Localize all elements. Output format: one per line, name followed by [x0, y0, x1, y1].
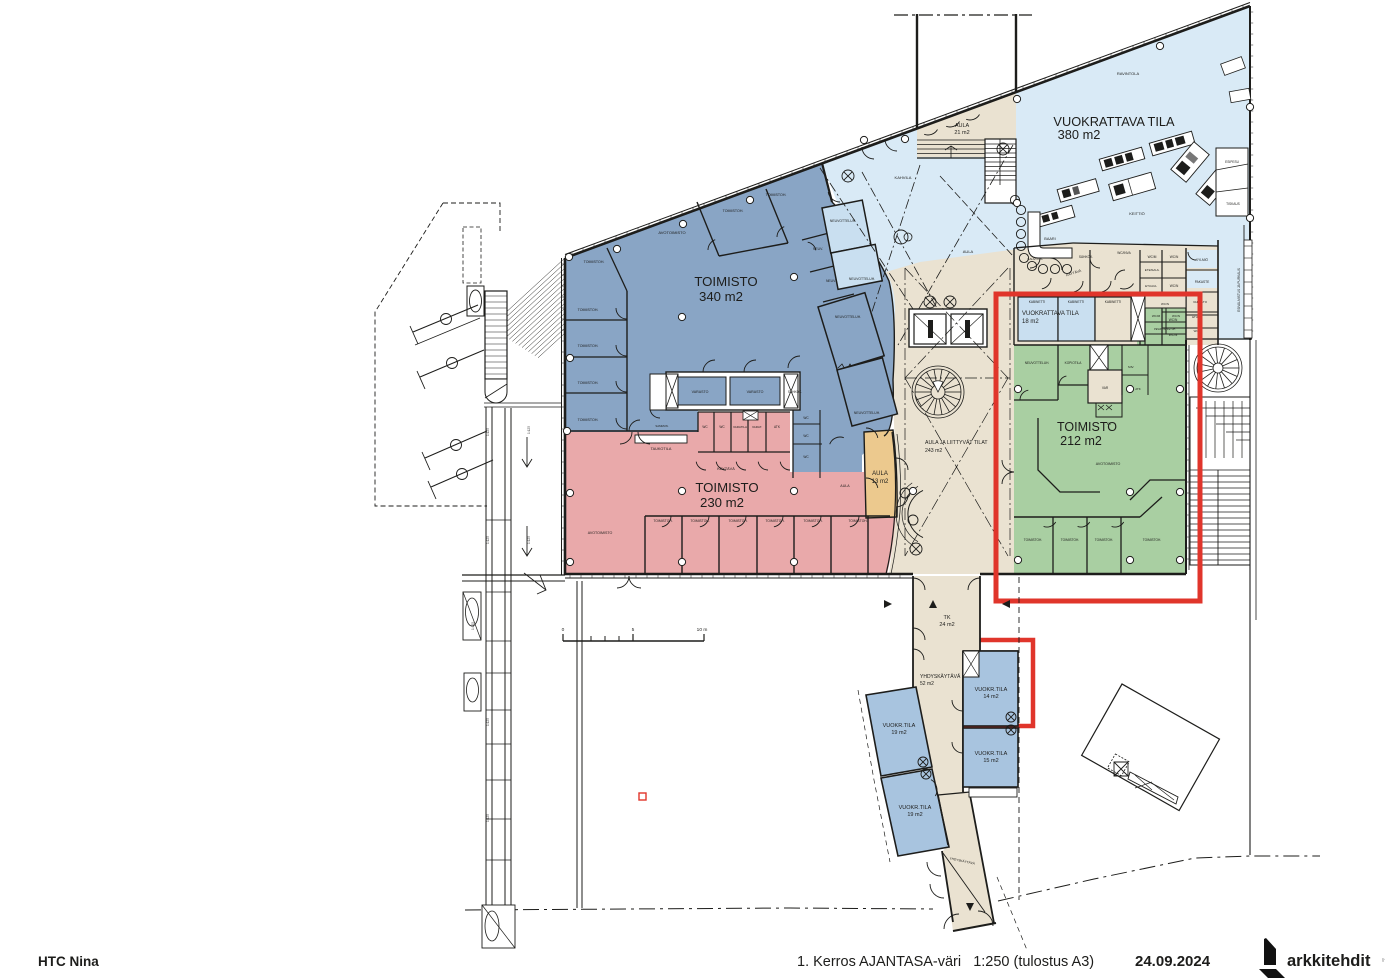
svg-text:SÄHKÖK.: SÄHKÖK. — [788, 390, 802, 394]
svg-text:YHDYSKÄYTÄVÄ: YHDYSKÄYTÄVÄ — [920, 673, 961, 680]
svg-text:WC/N: WC/N — [1170, 284, 1179, 288]
svg-text:18 m2: 18 m2 — [1022, 319, 1039, 325]
svg-text:PAKASTE: PAKASTE — [1195, 280, 1209, 284]
svg-text:TOIMISTOH.: TOIMISTOH. — [578, 418, 599, 422]
svg-text:0: 0 — [562, 627, 565, 633]
svg-text:NEUV.: NEUV. — [826, 279, 836, 283]
svg-text:340 m2: 340 m2 — [699, 289, 743, 304]
svg-text:KYLMIÖ: KYLMIÖ — [1196, 258, 1209, 262]
svg-text:1. Kerros AJANTASA-väri 1:25: 1. Kerros AJANTASA-väri 1:250 (tulostus … — [797, 954, 1094, 970]
svg-text:KABINETTI: KABINETTI — [1029, 300, 1046, 304]
svg-text:VUOKRATTAVA TILA: VUOKRATTAVA TILA — [1022, 311, 1079, 317]
svg-text:13 m2: 13 m2 — [872, 479, 889, 485]
svg-text:NEUVOTTELUH.: NEUVOTTELUH. — [849, 277, 875, 281]
svg-text:NEUVOTTELUH.: NEUVOTTELUH. — [1025, 361, 1050, 365]
svg-text:212 m2: 212 m2 — [1060, 434, 1102, 448]
svg-text:24.09.2024: 24.09.2024 — [1135, 953, 1211, 970]
svg-text:TOIMISTOH.: TOIMISTOH. — [578, 308, 599, 312]
svg-text:ATK: ATK — [774, 425, 781, 429]
svg-text:TISKAUS: TISKAUS — [1226, 202, 1240, 206]
svg-text:arkkitehdit: arkkitehdit — [1287, 952, 1371, 970]
svg-text:1:125: 1:125 — [527, 536, 531, 544]
svg-text:19 m2: 19 m2 — [891, 730, 906, 736]
svg-text:VARAT.: VARAT. — [752, 425, 762, 429]
svg-text:WC: WC — [719, 425, 725, 429]
svg-text:1:125: 1:125 — [486, 718, 490, 726]
svg-text:NEUVOTTELUH.: NEUVOTTELUH. — [830, 219, 856, 223]
svg-text:NEUVOTTELUH.: NEUVOTTELUH. — [835, 315, 861, 319]
svg-text:ATK: ATK — [1135, 387, 1141, 391]
svg-text:ETEISAUL: ETEISAUL — [1145, 268, 1160, 272]
svg-text:SAMMUN.: SAMMUN. — [655, 424, 668, 428]
svg-text:5: 5 — [632, 627, 635, 633]
svg-text:TOIMISTOH.: TOIMISTOH. — [584, 260, 605, 264]
svg-text:24 m2: 24 m2 — [939, 622, 954, 628]
svg-text:VARATILA: VARATILA — [733, 425, 747, 429]
svg-text:TOIMISTO: TOIMISTO — [694, 274, 757, 289]
svg-text:TOIMISTOH.: TOIMISTOH. — [1024, 538, 1043, 542]
svg-text:380 m2: 380 m2 — [1058, 127, 1101, 142]
svg-text:VARASTO: VARASTO — [692, 390, 709, 394]
svg-text:WC: WC — [803, 434, 809, 438]
svg-text:AULA: AULA — [963, 249, 974, 254]
svg-text:VUOKR.TILA: VUOKR.TILA — [899, 805, 932, 811]
svg-text:TOIMISTOH.: TOIMISTOH. — [1143, 538, 1162, 542]
svg-text:VAR: VAR — [1102, 386, 1109, 390]
svg-text:WC: WC — [702, 425, 708, 429]
svg-text:AVOTOIMISTO: AVOTOIMISTO — [658, 230, 685, 235]
svg-text:52 m2: 52 m2 — [920, 681, 934, 687]
svg-text:SÄHKÖK.: SÄHKÖK. — [1079, 255, 1093, 259]
svg-text:230 m2: 230 m2 — [700, 495, 744, 510]
svg-text:VUOKR.TILA: VUOKR.TILA — [975, 751, 1008, 757]
svg-text:1:125: 1:125 — [486, 814, 490, 822]
svg-text:TOIMISTOH.: TOIMISTOH. — [1095, 538, 1114, 542]
svg-text:WC: WC — [803, 416, 809, 420]
svg-text:TK: TK — [943, 615, 950, 621]
svg-text:15 m2: 15 m2 — [983, 758, 998, 764]
svg-text:AVOTOIMISTO: AVOTOIMISTO — [588, 531, 613, 535]
svg-text:BAARI: BAARI — [1044, 237, 1055, 241]
svg-text:ESIPESU: ESIPESU — [1225, 160, 1240, 164]
svg-text:TOIMISTOH.: TOIMISTOH. — [1061, 538, 1080, 542]
svg-text:1:125: 1:125 — [486, 536, 490, 544]
svg-text:TOIMISTO: TOIMISTO — [695, 480, 758, 495]
svg-text:21 m2: 21 m2 — [954, 130, 969, 136]
svg-text:AULA: AULA — [840, 484, 850, 488]
svg-text:AULA: AULA — [872, 471, 888, 477]
svg-text:TOIMISTOH.: TOIMISTOH. — [578, 344, 599, 348]
svg-text:KABINETTI: KABINETTI — [1068, 300, 1085, 304]
svg-text:NEUVOTTELUH.: NEUVOTTELUH. — [854, 411, 880, 415]
svg-text:RAVINTOLA: RAVINTOLA — [1117, 71, 1140, 76]
svg-text:1:125: 1:125 — [486, 428, 490, 436]
svg-text:WC: WC — [803, 455, 809, 459]
svg-text:KABINETTI: KABINETTI — [1105, 300, 1122, 304]
svg-text:1:125: 1:125 — [471, 622, 475, 630]
svg-text:WC/M: WC/M — [1152, 314, 1161, 318]
svg-text:WC/N: WC/N — [1170, 255, 1179, 259]
svg-text:10 m: 10 m — [697, 627, 708, 633]
svg-text:WC/M: WC/M — [1148, 255, 1157, 259]
svg-text:KOPIOTILA: KOPIOTILA — [1065, 361, 1083, 365]
svg-text:ESIVALMISTUS JA PURKAUS: ESIVALMISTUS JA PURKAUS — [1237, 268, 1241, 312]
svg-text:TOIMISTOH.: TOIMISTOH. — [766, 193, 787, 197]
svg-text:NEUV.: NEUV. — [813, 247, 823, 251]
svg-text:oy: oy — [1381, 958, 1385, 962]
svg-text:WC/N: WC/N — [1169, 318, 1178, 322]
svg-text:19 m2: 19 m2 — [907, 812, 922, 818]
svg-text:SIIV.: SIIV. — [1128, 365, 1134, 369]
svg-text:ETUAUL: ETUAUL — [1145, 284, 1157, 288]
svg-text:KEITTIÖ: KEITTIÖ — [1129, 211, 1145, 216]
svg-text:14 m2: 14 m2 — [983, 694, 998, 700]
svg-text:243 m2: 243 m2 — [925, 448, 942, 454]
svg-text:VUOKR.TILA: VUOKR.TILA — [883, 723, 916, 729]
svg-text:TOIMISTOH.: TOIMISTOH. — [723, 209, 744, 213]
svg-text:TAUKOTILA: TAUKOTILA — [651, 447, 672, 451]
svg-text:VARASTO: VARASTO — [747, 390, 764, 394]
svg-text:PESUH./SIIV.ETUH.: PESUH./SIIV.ETUH. — [1154, 328, 1176, 331]
svg-text:WC/N: WC/N — [1172, 314, 1180, 318]
svg-text:AULA JA LIITTYVÄT TILAT: AULA JA LIITTYVÄT TILAT — [925, 439, 988, 446]
svg-text:KAHVILA: KAHVILA — [895, 175, 912, 180]
svg-text:WC/INVA: WC/INVA — [1117, 251, 1131, 255]
svg-text:HTC Nina: HTC Nina — [38, 954, 99, 969]
svg-text:1:125: 1:125 — [527, 426, 531, 434]
svg-text:VUOKR.TILA: VUOKR.TILA — [975, 687, 1008, 693]
svg-text:WC/N: WC/N — [1161, 302, 1169, 306]
svg-text:AVOTOIMISTO: AVOTOIMISTO — [1096, 462, 1121, 466]
svg-text:TOIMISTOH.: TOIMISTOH. — [578, 381, 599, 385]
